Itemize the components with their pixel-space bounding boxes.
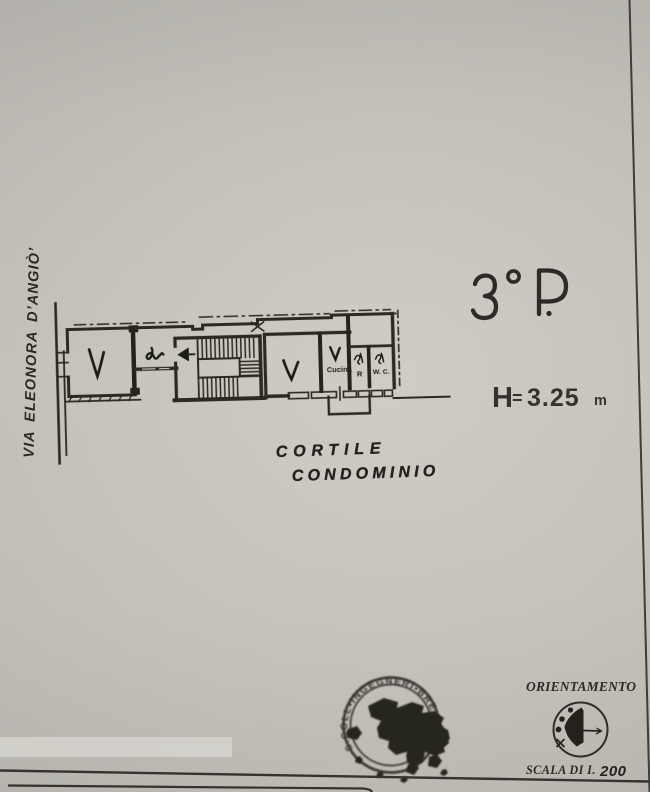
- svg-text:W. C.: W. C.: [373, 369, 390, 376]
- svg-text:SCALA DI I.: SCALA DI I.: [526, 763, 596, 777]
- svg-text:ORIENTAMENTO: ORIENTAMENTO: [526, 679, 636, 694]
- svg-text:3.25: 3.25: [527, 384, 580, 412]
- svg-text:200: 200: [599, 763, 627, 780]
- svg-text:CORTILE: CORTILE: [276, 440, 387, 461]
- svg-text:VIA ELEONORA D’ANGIÒ’: VIA ELEONORA D’ANGIÒ’: [20, 246, 44, 458]
- svg-text:R: R: [357, 369, 363, 378]
- svg-text:CONDOMINIO: CONDOMINIO: [292, 463, 440, 485]
- svg-text:Cucina: Cucina: [327, 365, 353, 375]
- svg-text:H: H: [492, 382, 513, 414]
- svg-text:m: m: [594, 393, 607, 409]
- svg-text:=: =: [512, 388, 523, 408]
